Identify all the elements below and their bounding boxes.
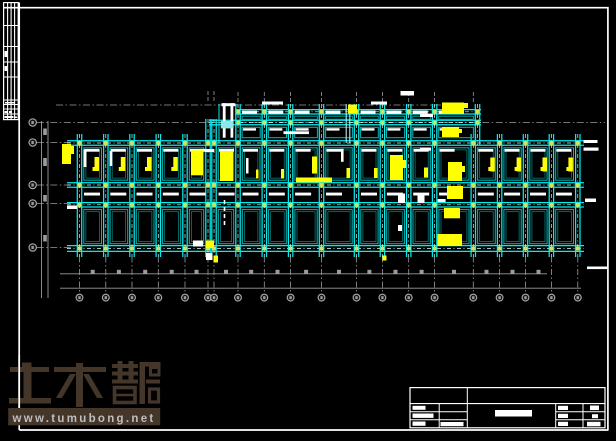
svg-text:www.tumubong.net: www.tumubong.net xyxy=(11,413,155,425)
